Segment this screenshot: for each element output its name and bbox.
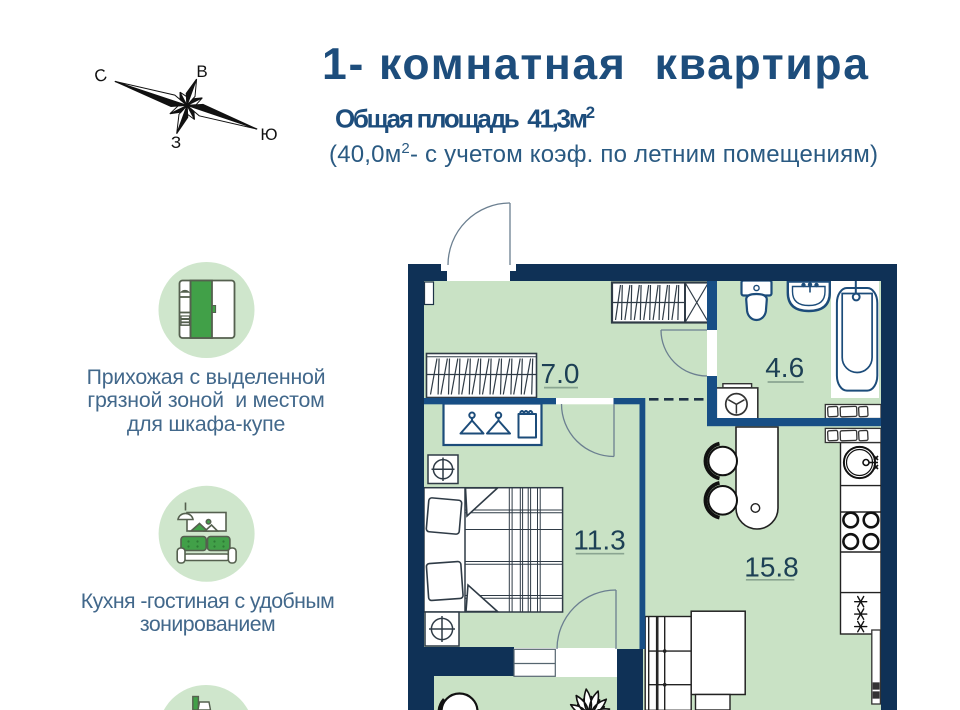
svg-text:11.3: 11.3 <box>573 524 625 555</box>
svg-text:С: С <box>92 65 109 86</box>
svg-text:В: В <box>196 62 207 81</box>
svg-text:7.0: 7.0 <box>541 358 580 389</box>
svg-text:З: З <box>171 133 181 152</box>
svg-text:4.6: 4.6 <box>765 352 804 383</box>
svg-text:Ю: Ю <box>260 125 277 144</box>
svg-text:15.8: 15.8 <box>744 552 799 583</box>
